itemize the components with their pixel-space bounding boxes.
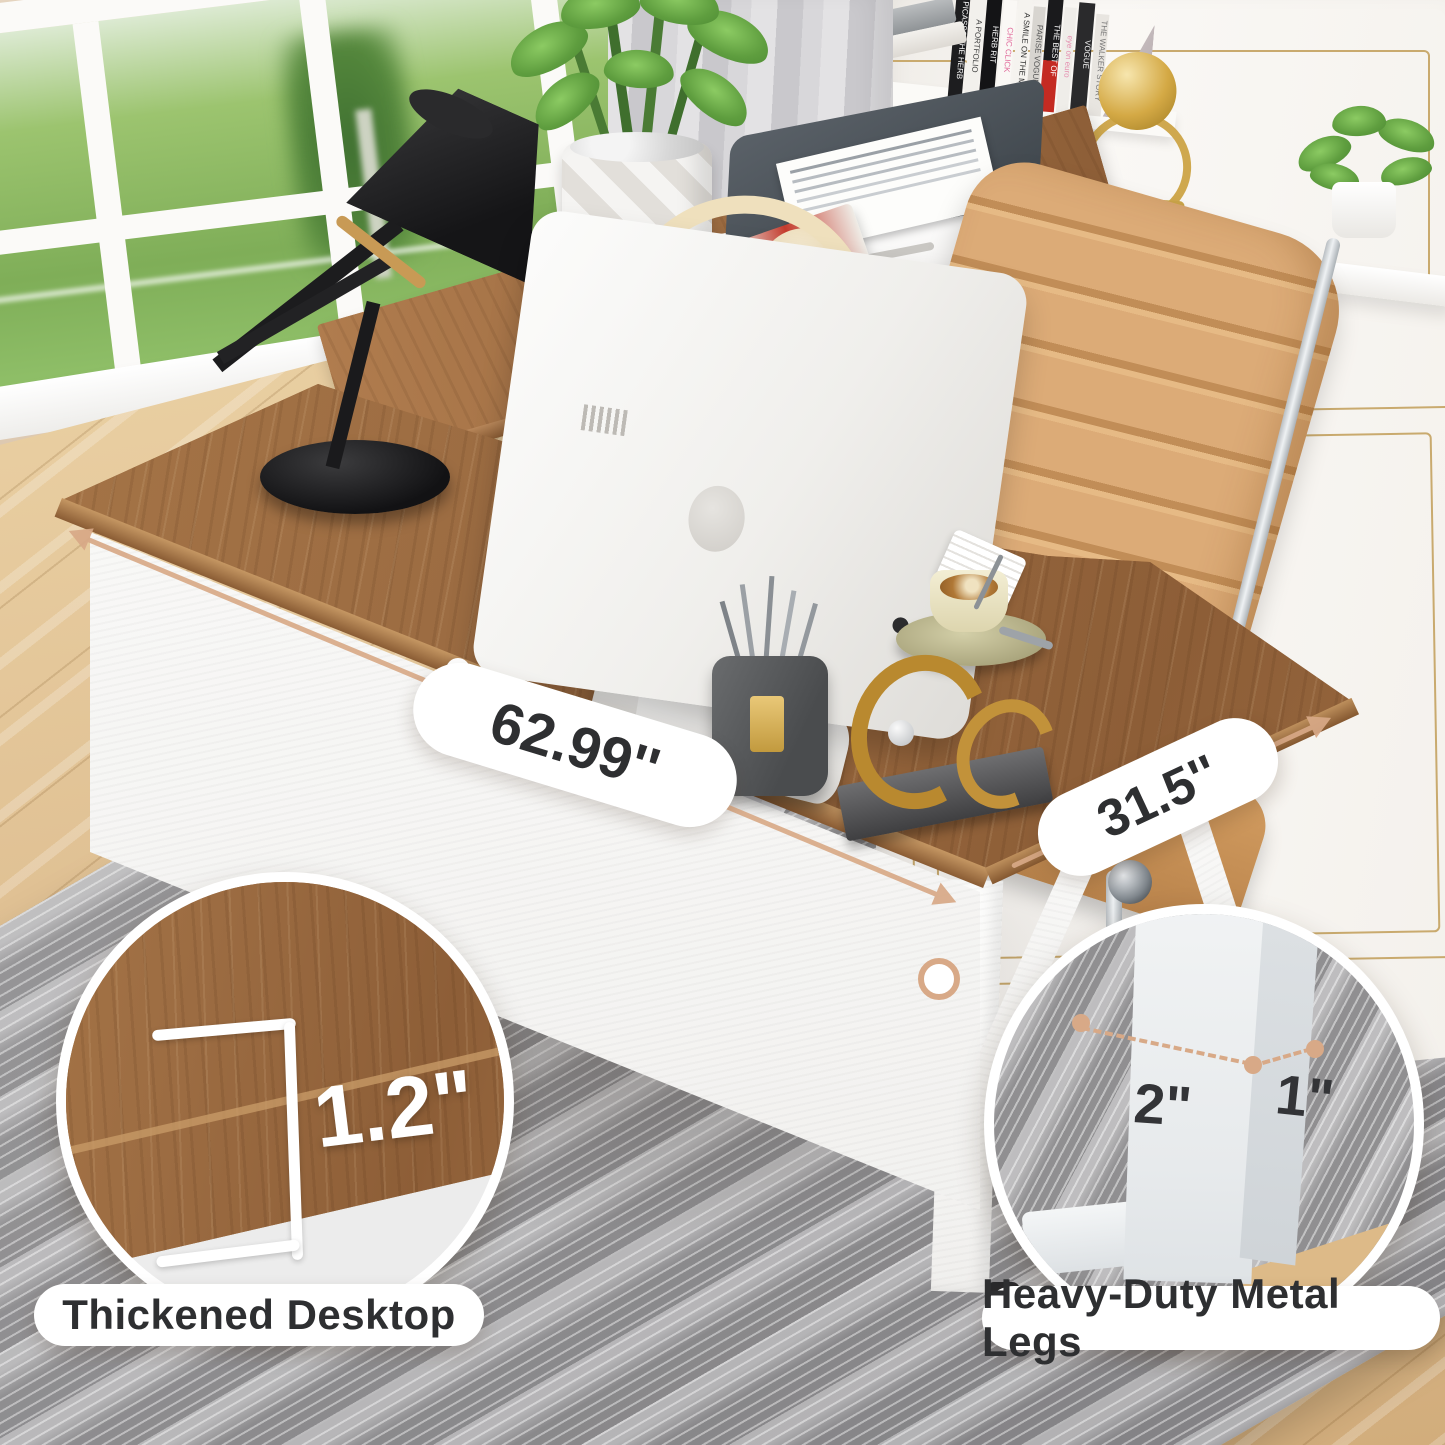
- clock-face: [750, 696, 784, 752]
- vase-pebbles: [570, 132, 704, 162]
- leg-dim-dot-a: [1072, 1014, 1090, 1032]
- coffee-cup: [930, 570, 1008, 632]
- thickness-callout-circle: 1.2": [56, 872, 514, 1330]
- leg-dim-dot-c: [1306, 1040, 1324, 1058]
- monitor-cable-hole: [684, 482, 749, 555]
- product-photo-scene: PICASSO THE HERB A PORTFOLIO HERB RIT CH…: [0, 0, 1445, 1445]
- leg-depth-value: 1": [1273, 1061, 1337, 1132]
- leg-anchor-ring: [918, 958, 960, 1000]
- decor-sphere: [888, 720, 914, 746]
- legs-caption-badge: Heavy-Duty Metal Legs: [982, 1286, 1440, 1350]
- thickness-caption-text: Thickened Desktop: [62, 1291, 456, 1339]
- thickness-caption-badge: Thickened Desktop: [34, 1284, 484, 1346]
- legs-caption-text: Heavy-Duty Metal Legs: [982, 1270, 1440, 1366]
- leg-dim-dot-b: [1244, 1056, 1262, 1074]
- thickness-value: 1.2": [309, 1051, 480, 1169]
- lamp-base: [260, 440, 450, 514]
- decor-sculpture: [830, 650, 1070, 850]
- monitor-vents: [581, 404, 628, 436]
- leg-width-value: 2": [1132, 1070, 1194, 1139]
